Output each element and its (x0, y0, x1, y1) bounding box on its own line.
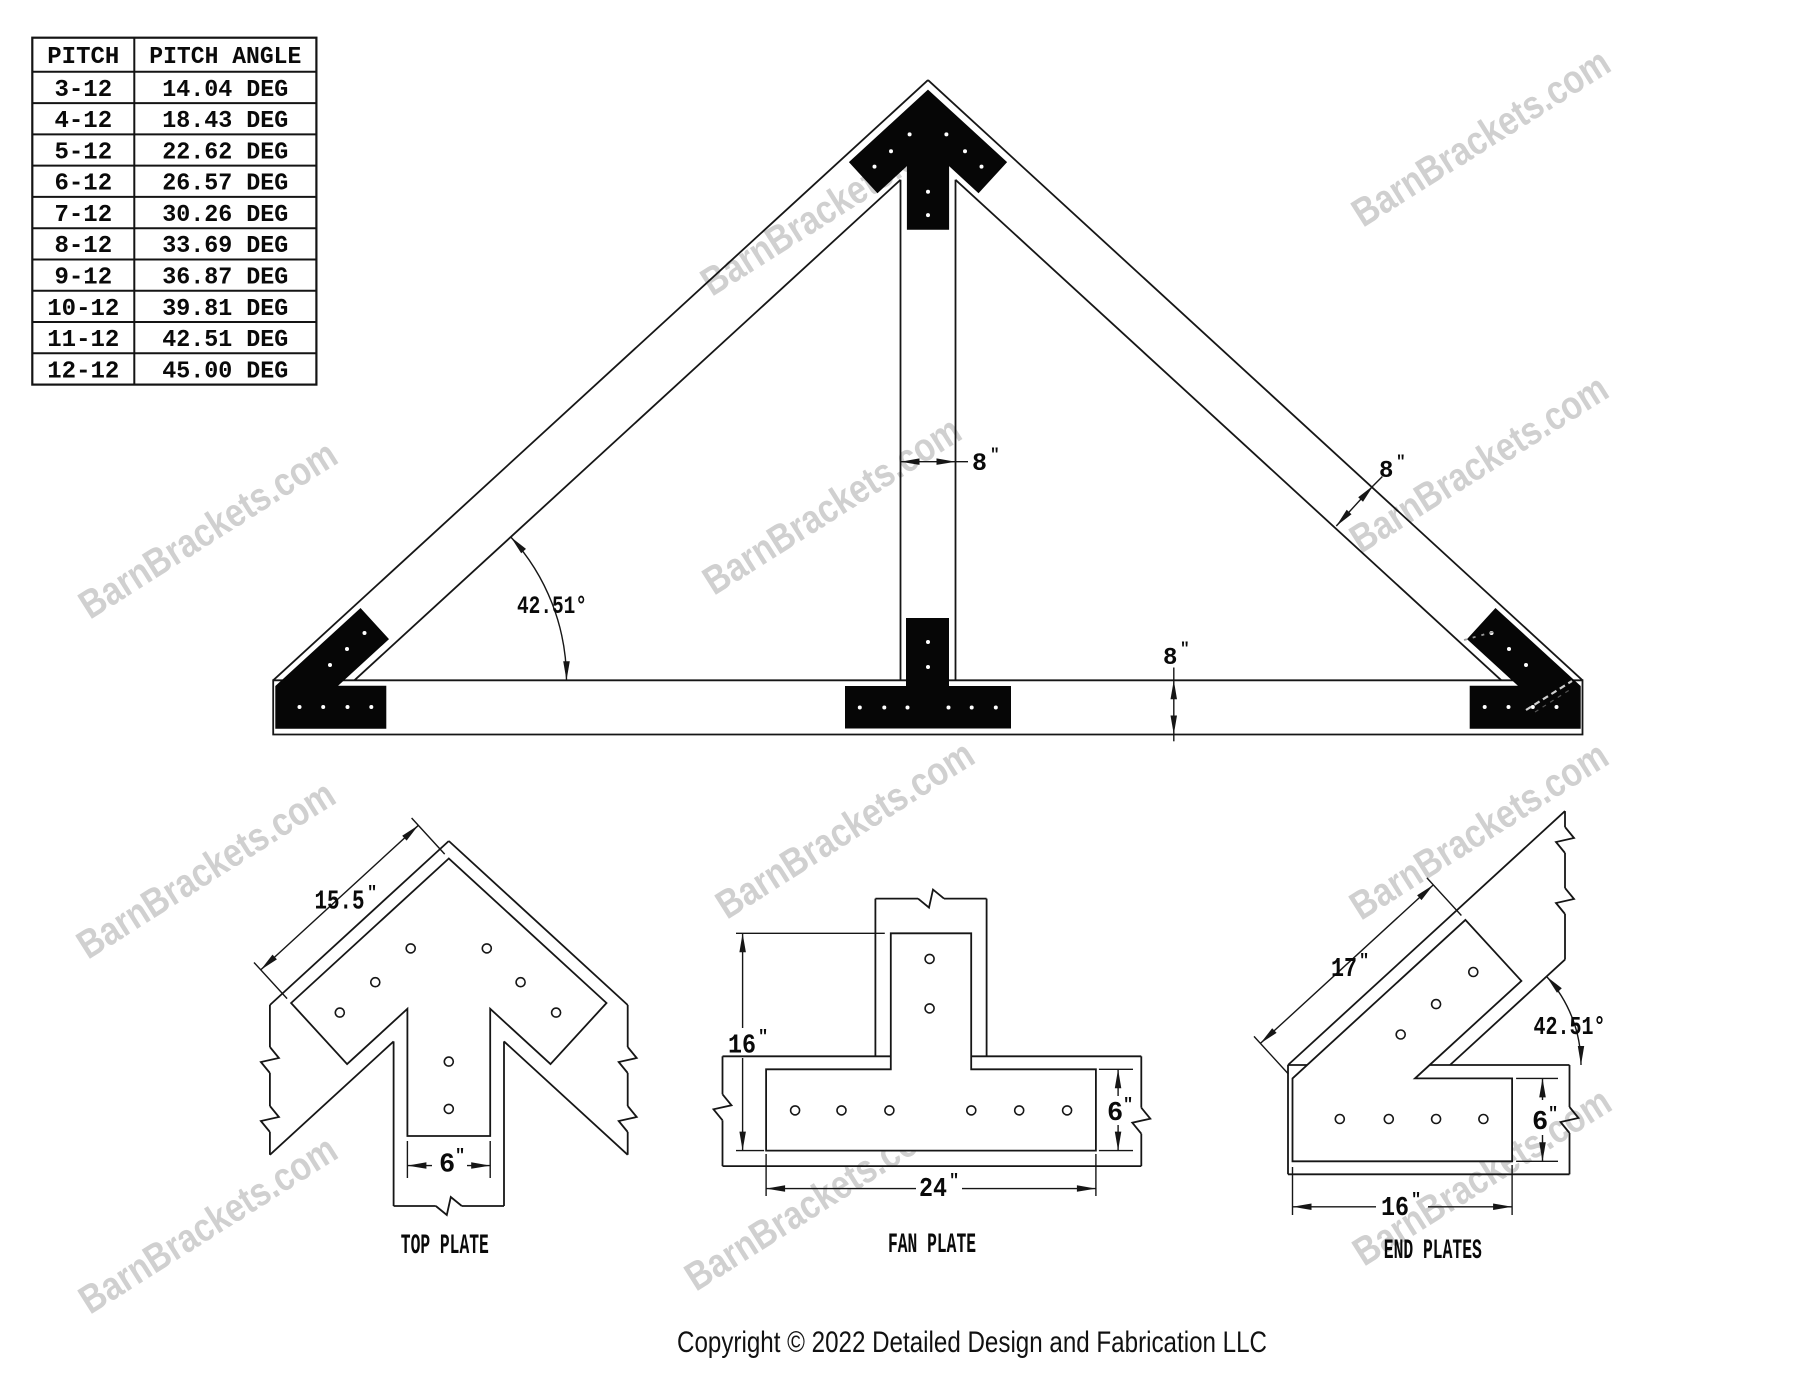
svg-text:FAN PLATE: FAN PLATE (888, 1230, 976, 1261)
svg-text:″: ″ (949, 1172, 959, 1191)
svg-text:8: 8 (1163, 645, 1177, 672)
svg-text:6-12: 6-12 (54, 171, 112, 198)
svg-text:6: 6 (1107, 1099, 1123, 1129)
svg-text:36.87 DEG: 36.87 DEG (162, 265, 288, 292)
svg-text:″: ″ (455, 1147, 465, 1166)
svg-text:″: ″ (1180, 640, 1190, 658)
svg-text:14.04 DEG: 14.04 DEG (162, 77, 288, 104)
svg-text:″: ″ (1548, 1105, 1558, 1124)
svg-text:45.00 DEG: 45.00 DEG (162, 358, 288, 385)
svg-text:″: ″ (1123, 1096, 1133, 1115)
svg-text:3-12: 3-12 (54, 77, 112, 104)
svg-text:12-12: 12-12 (47, 358, 119, 385)
svg-text:33.69 DEG: 33.69 DEG (162, 233, 288, 260)
svg-text:″: ″ (367, 884, 377, 903)
svg-text:END PLATES: END PLATES (1384, 1236, 1482, 1267)
svg-text:6: 6 (1532, 1108, 1548, 1138)
svg-text:TOP PLATE: TOP PLATE (401, 1231, 489, 1262)
svg-text:7-12: 7-12 (54, 202, 112, 229)
svg-text:24: 24 (919, 1175, 947, 1205)
svg-text:42.51°: 42.51° (517, 592, 587, 621)
svg-text:″: ″ (1359, 952, 1369, 971)
svg-text:5-12: 5-12 (54, 139, 112, 166)
svg-text:16: 16 (1381, 1194, 1409, 1224)
svg-text:10-12: 10-12 (47, 296, 119, 323)
svg-text:8: 8 (972, 449, 987, 478)
svg-text:6: 6 (439, 1151, 455, 1181)
svg-text:PITCH: PITCH (47, 44, 119, 71)
svg-text:39.81 DEG: 39.81 DEG (162, 296, 288, 323)
svg-text:30.26 DEG: 30.26 DEG (162, 202, 288, 229)
svg-text:42.51°: 42.51° (1534, 1012, 1606, 1042)
svg-text:″: ″ (758, 1028, 768, 1047)
svg-text:4-12: 4-12 (54, 108, 112, 135)
svg-text:16: 16 (728, 1032, 756, 1062)
svg-text:22.62 DEG: 22.62 DEG (162, 139, 288, 166)
svg-text:11-12: 11-12 (47, 327, 119, 354)
svg-text:18.43 DEG: 18.43 DEG (162, 108, 288, 135)
svg-text:″: ″ (990, 446, 1000, 464)
svg-text:8: 8 (1379, 458, 1393, 485)
svg-text:″: ″ (1411, 1191, 1421, 1210)
svg-text:PITCH ANGLE: PITCH ANGLE (149, 44, 301, 71)
svg-text:9-12: 9-12 (54, 265, 112, 292)
svg-text:Copyright © 2022 Detailed Desi: Copyright © 2022 Detailed Design and Fab… (677, 1326, 1267, 1359)
svg-text:17: 17 (1331, 955, 1357, 985)
svg-text:15.5: 15.5 (315, 888, 365, 918)
svg-text:″: ″ (1396, 453, 1406, 471)
svg-text:8-12: 8-12 (54, 233, 112, 260)
svg-text:26.57 DEG: 26.57 DEG (162, 171, 288, 198)
svg-text:42.51 DEG: 42.51 DEG (162, 327, 288, 354)
